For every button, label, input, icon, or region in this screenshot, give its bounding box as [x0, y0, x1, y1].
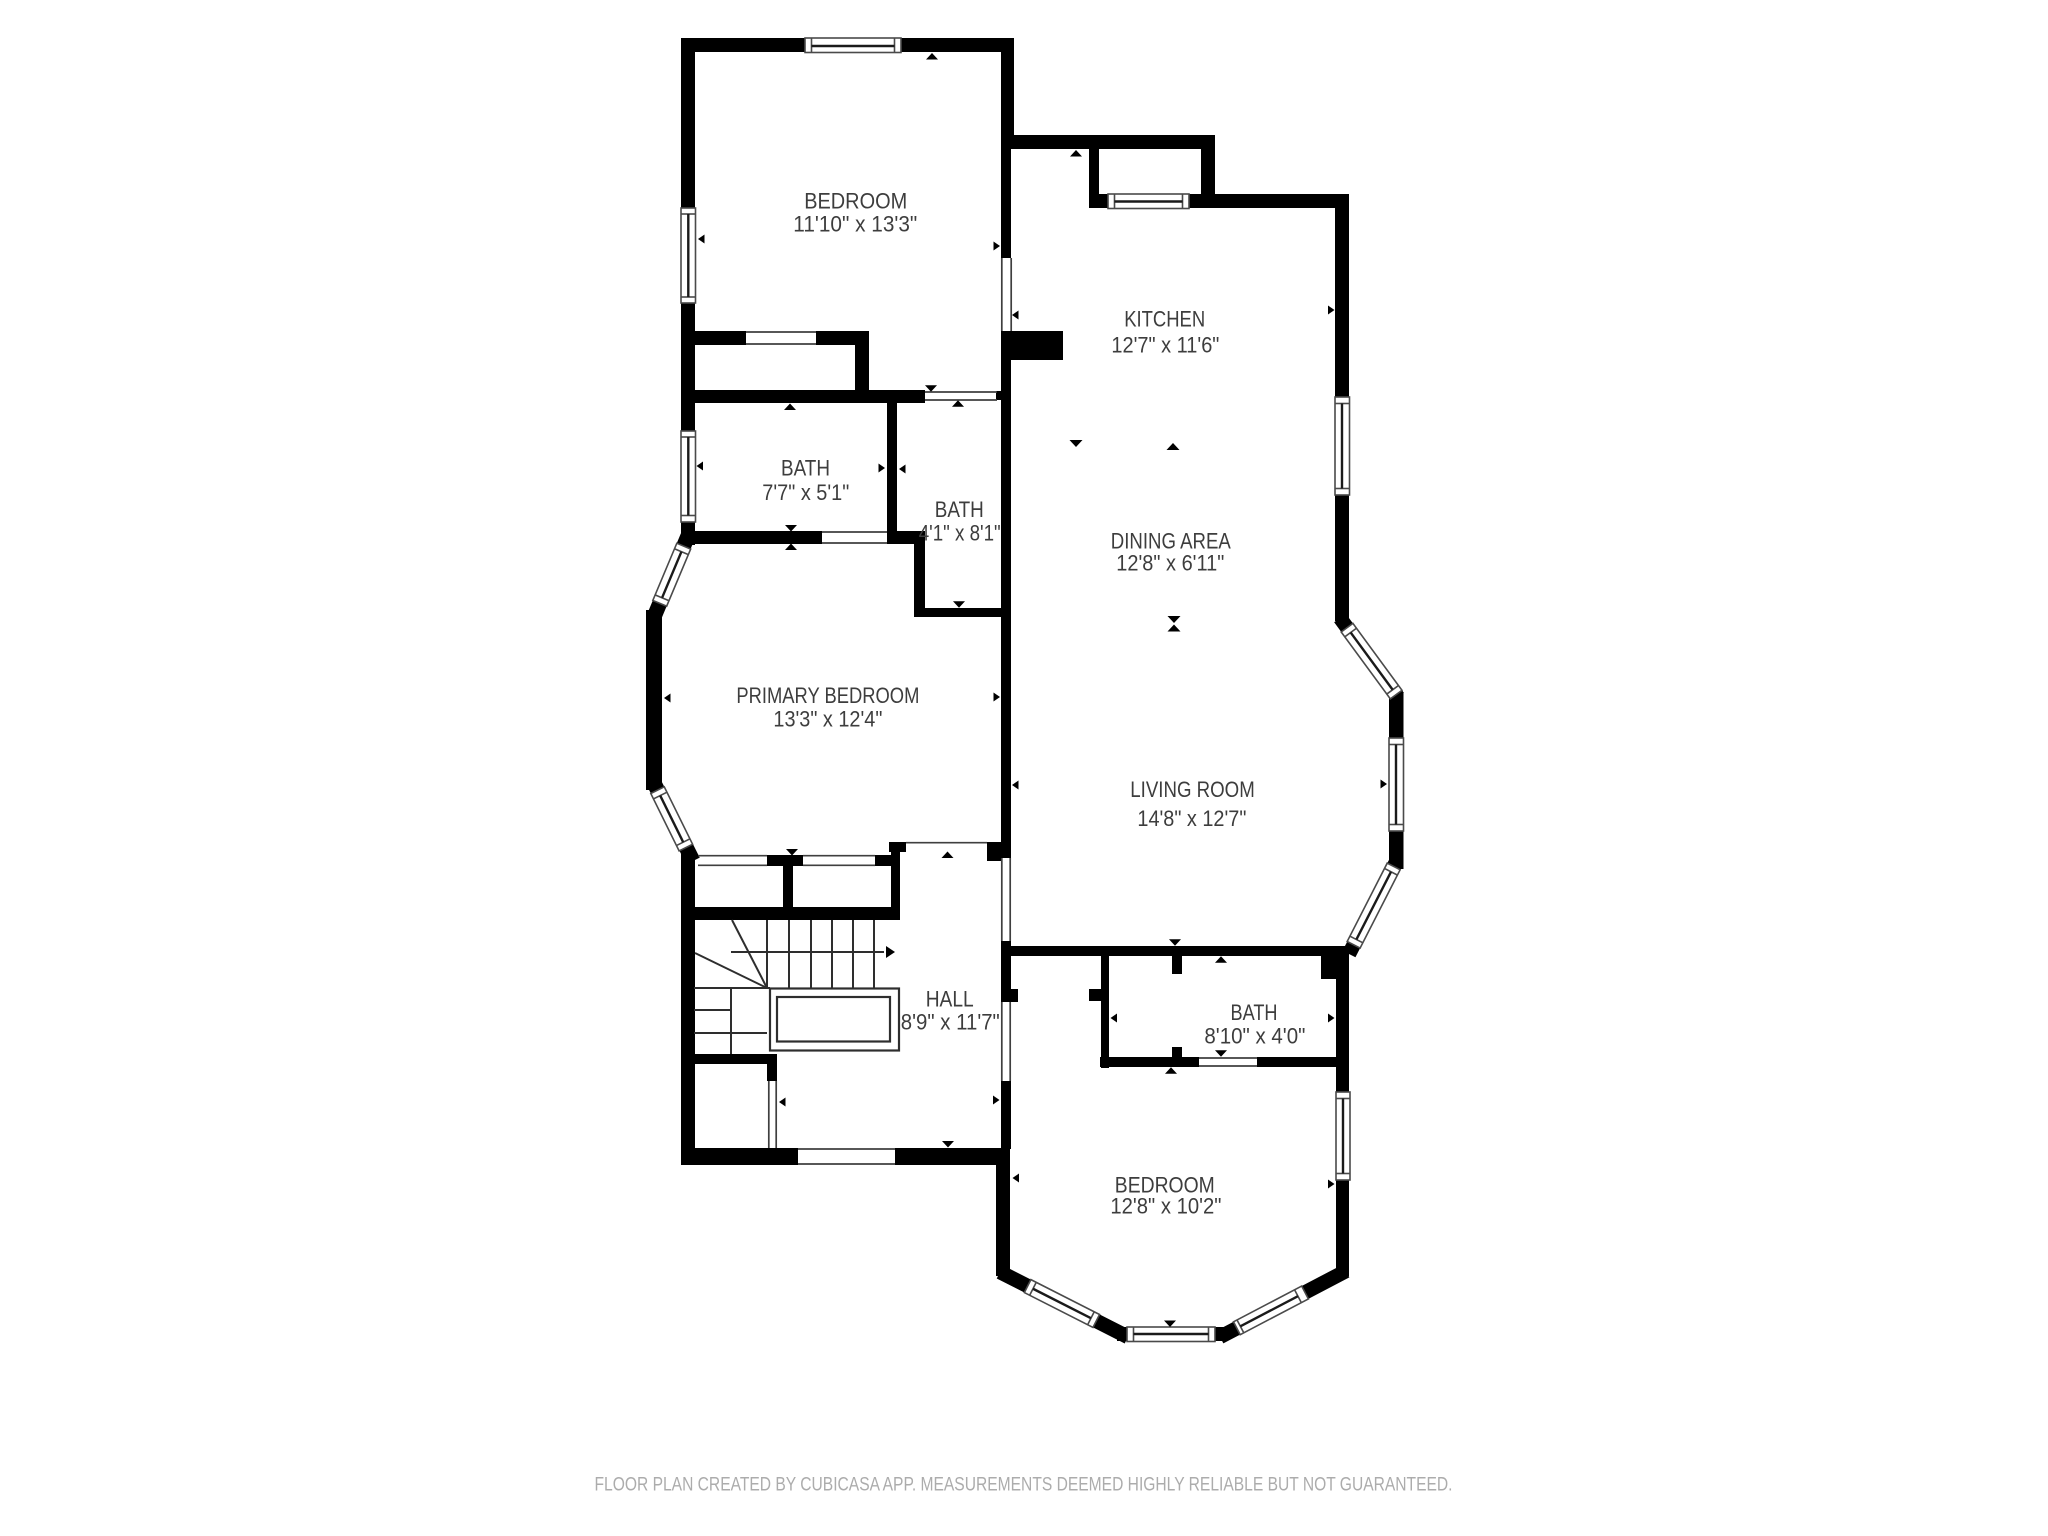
svg-text:8'10" x 4'0": 8'10" x 4'0": [1204, 1023, 1305, 1048]
svg-text:BEDROOM: BEDROOM: [804, 188, 907, 213]
svg-text:BATH: BATH: [935, 497, 984, 522]
svg-text:FLOOR PLAN CREATED BY CUBICASA: FLOOR PLAN CREATED BY CUBICASA APP. MEAS…: [595, 1475, 1453, 1496]
svg-text:BATH: BATH: [1231, 1000, 1278, 1025]
svg-text:8'9" x 11'7": 8'9" x 11'7": [901, 1009, 1000, 1034]
svg-text:7'7" x 5'1": 7'7" x 5'1": [762, 480, 849, 505]
svg-text:11'10" x 13'3": 11'10" x 13'3": [793, 212, 917, 237]
svg-text:12'8" x 6'11": 12'8" x 6'11": [1116, 550, 1224, 575]
svg-text:PRIMARY BEDROOM: PRIMARY BEDROOM: [736, 683, 919, 708]
svg-text:LIVING ROOM: LIVING ROOM: [1130, 777, 1255, 802]
svg-text:12'7" x 11'6": 12'7" x 11'6": [1111, 333, 1219, 358]
svg-text:12'8" x 10'2": 12'8" x 10'2": [1110, 1194, 1221, 1219]
svg-text:HALL: HALL: [926, 987, 974, 1012]
svg-text:14'8" x 12'7": 14'8" x 12'7": [1137, 806, 1246, 831]
svg-text:4'1" x 8'1": 4'1" x 8'1": [919, 520, 1001, 545]
svg-text:BATH: BATH: [781, 456, 830, 481]
svg-text:13'3" x 12'4": 13'3" x 12'4": [773, 707, 882, 732]
svg-text:KITCHEN: KITCHEN: [1124, 307, 1205, 332]
